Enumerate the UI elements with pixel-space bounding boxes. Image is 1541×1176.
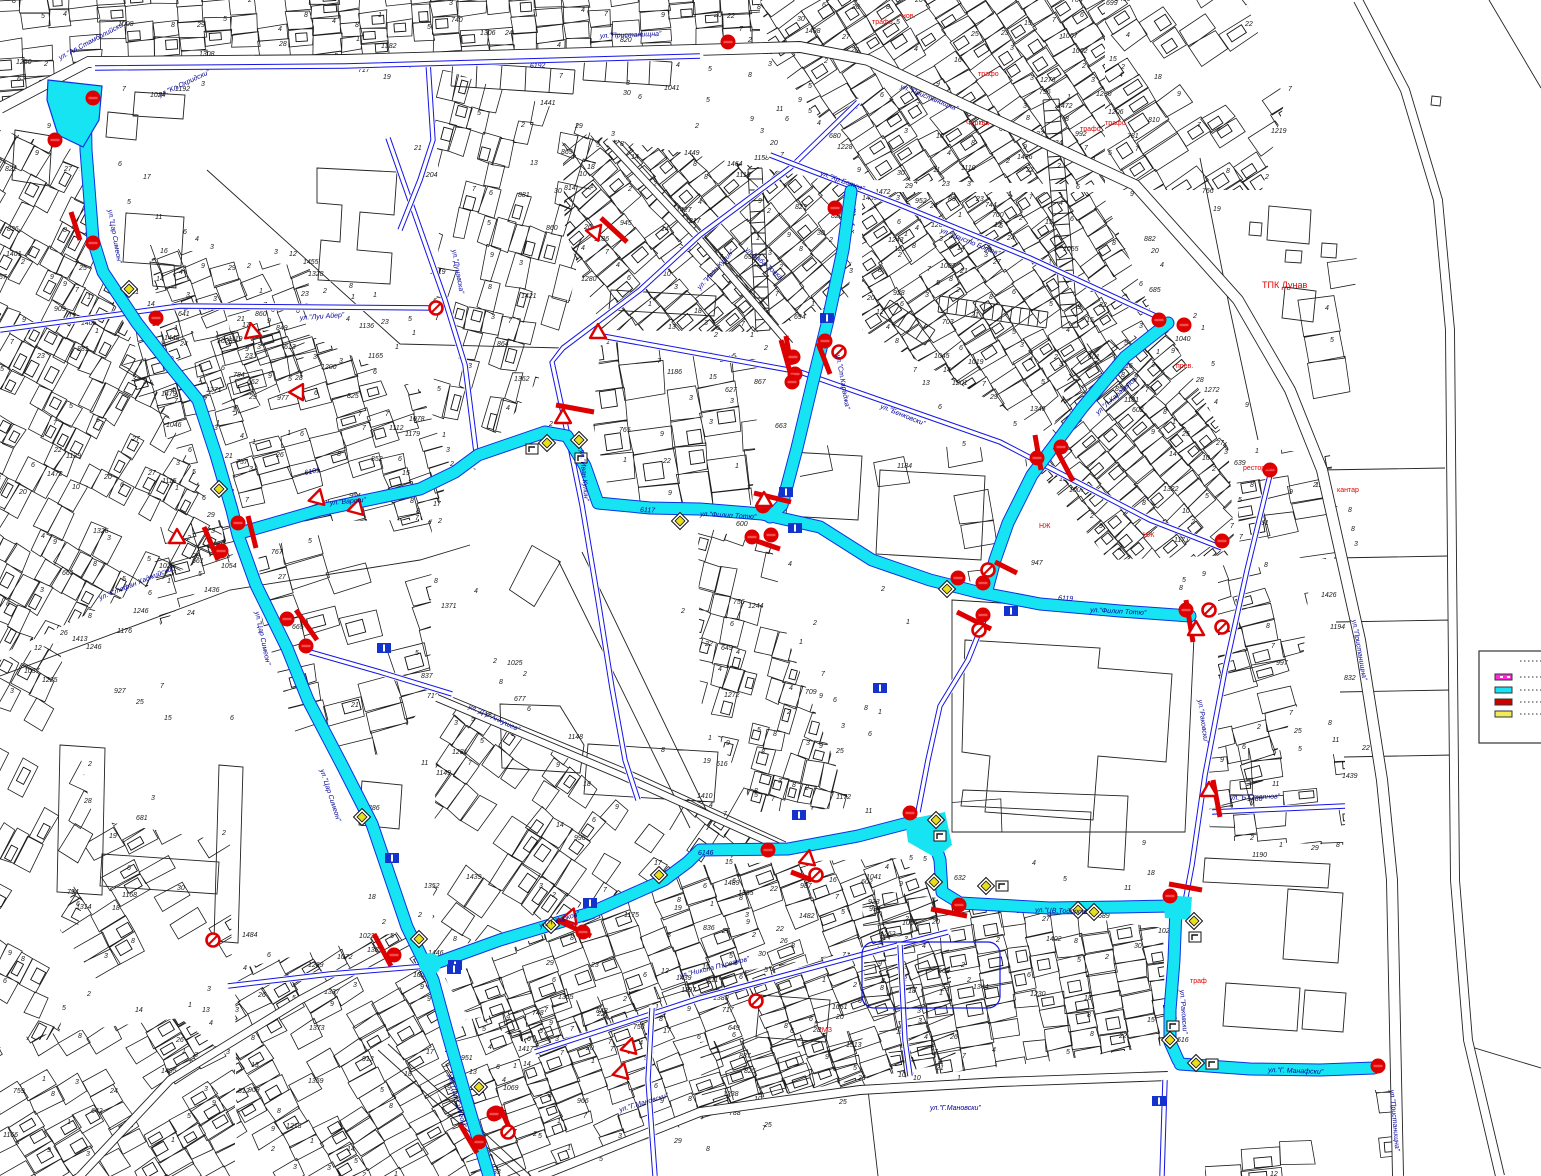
svg-text:5: 5 [1182,577,1186,584]
svg-text:нов.: нов. [902,13,915,20]
svg-text:30: 30 [554,188,562,195]
svg-text:19: 19 [703,758,711,765]
svg-text:602: 602 [1132,407,1144,414]
svg-text:5: 5 [62,1005,66,1012]
svg-text:9: 9 [212,1100,216,1107]
svg-text:2: 2 [1249,835,1254,842]
svg-text:1244: 1244 [748,603,764,610]
svg-text:5: 5 [122,576,126,583]
svg-text:11: 11 [776,106,783,113]
svg-text:8: 8 [1074,938,1078,945]
svg-text:1272: 1272 [1204,387,1220,394]
svg-text:661: 661 [62,570,74,577]
svg-text:852: 852 [371,456,383,463]
svg-text:1: 1 [906,619,910,626]
svg-text:18: 18 [1154,74,1162,81]
svg-text:20: 20 [1150,248,1159,255]
svg-text:3: 3 [339,358,343,365]
svg-text:8: 8 [1112,240,1116,247]
svg-text:3: 3 [849,268,853,275]
svg-text:1230: 1230 [1030,991,1046,998]
svg-text:951: 951 [461,1055,473,1062]
svg-text:12: 12 [289,251,297,258]
svg-text:4: 4 [914,46,918,53]
svg-text:3: 3 [939,236,943,243]
svg-text:8: 8 [453,936,457,943]
svg-text:704: 704 [1071,0,1083,4]
svg-text:1054: 1054 [221,563,237,570]
svg-text:9: 9 [35,150,39,157]
svg-text:23: 23 [380,319,389,326]
svg-text:11: 11 [1332,737,1339,744]
svg-text:16: 16 [160,248,168,255]
svg-text:9: 9 [47,1147,51,1154]
svg-text:663: 663 [775,423,787,430]
svg-text:8: 8 [1065,116,1069,123]
svg-text:2: 2 [804,785,809,792]
svg-text:1: 1 [373,292,377,299]
svg-text:4: 4 [817,120,821,127]
svg-text:1119: 1119 [228,336,243,343]
svg-text:1346: 1346 [1030,406,1046,413]
svg-text:2: 2 [995,937,1000,944]
svg-text:4: 4 [581,245,585,252]
svg-text:927: 927 [114,688,127,695]
svg-text:трафо: трафо [1080,126,1101,133]
svg-text:848: 848 [596,1008,608,1015]
svg-text:20: 20 [835,1014,844,1021]
svg-text:616: 616 [1177,1037,1189,1044]
svg-text:10: 10 [72,484,80,491]
svg-text:1: 1 [750,332,754,339]
svg-text:6: 6 [496,1064,500,1071]
svg-text:14: 14 [556,822,564,829]
svg-text:3: 3 [1091,77,1095,84]
svg-text:5: 5 [1211,361,1215,368]
svg-text:4: 4 [63,11,67,18]
svg-text:3: 3 [918,1018,922,1025]
svg-text:6: 6 [6,601,10,608]
svg-text:6: 6 [785,116,789,123]
svg-text:3: 3 [449,0,453,7]
svg-text:1306: 1306 [480,30,496,37]
svg-text:13: 13 [530,160,538,167]
svg-text:977: 977 [277,395,290,402]
svg-text:29: 29 [673,1138,682,1145]
svg-text:9: 9 [878,961,882,968]
svg-text:20: 20 [18,489,27,496]
svg-text:17: 17 [930,1049,939,1056]
svg-text:трафо: трафо [978,71,999,78]
svg-text:784: 784 [233,372,245,379]
svg-text:5: 5 [1108,150,1112,157]
svg-text:1439: 1439 [466,874,482,881]
svg-text:4: 4 [947,150,951,157]
svg-text:9: 9 [819,743,823,750]
svg-text:8: 8 [304,12,308,19]
svg-text:1: 1 [756,235,760,242]
svg-text:8: 8 [355,22,359,29]
svg-text:3: 3 [1010,45,1014,52]
svg-text:6: 6 [638,94,642,101]
svg-text:3: 3 [213,296,217,303]
svg-text:19: 19 [109,833,117,840]
svg-text:3: 3 [704,320,708,327]
svg-text:9: 9 [798,97,802,104]
svg-text:909: 909 [248,1087,260,1094]
svg-text:987: 987 [800,883,813,890]
svg-text:1046: 1046 [166,422,182,429]
svg-text:1359: 1359 [308,1078,324,1085]
svg-text:8: 8 [63,227,67,234]
svg-text:668: 668 [938,968,950,975]
svg-text:680: 680 [829,133,841,140]
svg-text:8: 8 [864,705,868,712]
svg-text:8: 8 [171,22,175,29]
svg-text:3: 3 [176,460,180,467]
svg-text:30: 30 [897,170,905,177]
svg-text:1184: 1184 [897,463,912,470]
svg-text:2: 2 [778,264,783,271]
svg-text:1228: 1228 [837,144,853,151]
svg-text:1: 1 [1172,419,1176,426]
svg-text:4: 4 [502,1077,506,1084]
svg-text:736: 736 [0,1047,1,1054]
svg-text:8: 8 [1328,720,1332,727]
svg-text:8: 8 [971,140,975,147]
svg-text:15: 15 [402,470,410,477]
svg-text:9: 9 [1289,489,1293,496]
svg-text:1472: 1472 [47,471,63,478]
svg-text:2: 2 [694,123,699,130]
svg-text:6: 6 [1012,289,1016,296]
svg-text:1441: 1441 [540,100,556,107]
svg-text:5: 5 [1077,957,1081,964]
svg-text:882: 882 [1144,236,1156,243]
svg-text:8: 8 [570,935,574,942]
svg-text:29: 29 [574,123,583,130]
svg-text:1: 1 [590,183,594,190]
svg-text:5: 5 [1238,497,1242,504]
svg-text:1172: 1172 [836,794,851,801]
svg-text:1449: 1449 [684,150,700,157]
svg-text:2: 2 [680,608,685,615]
svg-text:16: 16 [954,57,962,64]
svg-text:1: 1 [1059,34,1063,41]
svg-text:2: 2 [492,658,497,665]
svg-text:9: 9 [726,740,730,747]
svg-text:1: 1 [811,301,815,308]
svg-text:24: 24 [504,30,513,37]
svg-text:4: 4 [698,199,702,206]
svg-text:632: 632 [954,875,966,882]
svg-text:30: 30 [623,90,631,97]
svg-text:2: 2 [381,919,386,926]
svg-text:6: 6 [527,706,531,713]
svg-text:6: 6 [858,998,862,1005]
svg-text:6: 6 [398,456,402,463]
svg-text:5: 5 [706,97,710,104]
svg-text:3: 3 [1354,541,1358,548]
svg-text:5: 5 [192,469,196,476]
svg-text:649: 649 [721,645,733,652]
svg-text:2: 2 [966,977,971,984]
svg-text:1371: 1371 [441,603,457,610]
svg-text:5: 5 [962,441,966,448]
svg-text:4: 4 [789,685,793,692]
svg-text:22: 22 [1118,1033,1127,1040]
svg-text:6: 6 [654,1083,658,1090]
svg-text:4: 4 [240,433,244,440]
svg-text:6: 6 [96,417,100,424]
svg-text:1194: 1194 [1330,624,1345,631]
svg-text:913: 913 [362,1056,374,1063]
svg-text:10: 10 [1202,455,1210,462]
svg-text:4: 4 [616,262,620,269]
svg-text:3: 3 [274,249,278,256]
svg-text:29: 29 [248,394,257,401]
svg-text:26: 26 [175,1037,184,1044]
svg-text:10: 10 [936,133,944,140]
svg-text:1: 1 [735,463,739,470]
svg-text:8: 8 [1351,526,1355,533]
svg-text:3: 3 [186,292,190,299]
svg-text:23: 23 [975,196,984,203]
svg-text:2: 2 [221,830,226,837]
svg-text:685: 685 [1149,287,1161,294]
svg-text:3: 3 [75,1079,79,1086]
svg-text:5: 5 [480,738,484,745]
svg-text:5: 5 [482,1026,486,1033]
svg-text:траф: траф [1190,978,1207,985]
svg-text:3: 3 [1023,103,1027,110]
svg-text:1: 1 [232,407,236,414]
svg-text:22: 22 [662,458,671,465]
svg-text:3: 3 [257,344,261,351]
svg-text:1069: 1069 [503,1085,519,1092]
svg-text:6192: 6192 [530,62,546,70]
svg-text:2: 2 [960,962,965,969]
svg-text:8: 8 [792,782,796,789]
svg-text:765: 765 [619,427,631,434]
svg-text:6: 6 [1076,184,1080,191]
svg-text:8: 8 [1142,500,1146,507]
svg-text:740: 740 [451,17,463,24]
svg-text:5: 5 [1013,421,1017,428]
svg-text:1: 1 [1008,191,1012,198]
svg-text:26: 26 [857,1075,866,1082]
svg-text:757: 757 [236,459,249,466]
svg-text:1: 1 [799,639,803,646]
svg-text:8: 8 [251,1035,255,1042]
svg-text:3: 3 [40,587,44,594]
svg-text:2: 2 [852,982,857,989]
svg-text:3: 3 [1059,361,1063,368]
svg-text:4: 4 [332,18,336,25]
svg-text:1166: 1166 [3,1132,18,1139]
svg-text:8: 8 [349,283,353,290]
svg-text:2: 2 [417,912,422,919]
svg-text:9: 9 [1077,304,1081,311]
svg-text:22: 22 [704,641,713,648]
svg-text:8: 8 [389,1103,393,1110]
svg-text:5: 5 [1124,340,1128,347]
svg-text:15: 15 [164,715,172,722]
svg-text:4: 4 [243,965,247,972]
svg-text:1402: 1402 [1046,936,1062,943]
svg-text:4: 4 [41,533,45,540]
svg-text:3: 3 [806,740,810,747]
svg-text:1484: 1484 [242,932,258,939]
svg-text:1: 1 [412,330,416,337]
svg-text:30: 30 [797,16,805,23]
svg-text:6: 6 [938,404,942,411]
svg-text:1112: 1112 [389,425,404,432]
svg-text:1: 1 [904,231,908,238]
svg-text:1072: 1072 [337,954,353,961]
svg-text:11: 11 [421,760,428,767]
svg-text:5: 5 [538,1133,542,1140]
svg-text:22: 22 [1025,167,1034,174]
svg-text:27: 27 [992,259,1002,266]
svg-text:6: 6 [716,325,720,332]
svg-text:20: 20 [914,0,923,4]
svg-text:ТПК Дунав: ТПК Дунав [1262,280,1307,290]
svg-text:8: 8 [1179,585,1183,592]
svg-text:4: 4 [676,62,680,69]
svg-text:25: 25 [970,31,979,38]
svg-text:9: 9 [660,431,664,438]
svg-text:8: 8 [1090,1031,1094,1038]
svg-text:2: 2 [246,263,251,270]
svg-text:5: 5 [308,538,312,545]
svg-text:4: 4 [1214,399,1218,406]
svg-text:881: 881 [518,192,530,199]
svg-text:3: 3 [1139,323,1143,330]
svg-text:1436: 1436 [204,587,220,594]
svg-text:1421: 1421 [521,293,537,300]
svg-text:3: 3 [1030,75,1034,82]
svg-text:5: 5 [1063,876,1067,883]
svg-text:1272: 1272 [724,692,740,699]
svg-text:6: 6 [822,2,826,9]
svg-text:3: 3 [760,128,764,135]
svg-text:1179: 1179 [405,431,420,438]
svg-text:9: 9 [8,950,12,957]
svg-text:814: 814 [564,185,576,192]
svg-text:2: 2 [551,892,556,899]
svg-text:1: 1 [67,1119,71,1126]
svg-text:3: 3 [210,244,214,251]
svg-text:1269: 1269 [308,962,324,969]
svg-text:3: 3 [107,535,111,542]
svg-text:14: 14 [156,276,164,283]
svg-text:8: 8 [12,0,16,5]
svg-text:1022: 1022 [359,933,375,940]
svg-text:3: 3 [86,1151,90,1158]
svg-text:24: 24 [929,203,938,210]
svg-text:6: 6 [230,715,234,722]
svg-text:9: 9 [1177,91,1181,98]
svg-text:9: 9 [1245,402,1249,409]
svg-text:5: 5 [1298,746,1302,753]
svg-text:9: 9 [758,198,762,205]
svg-text:1: 1 [708,735,712,742]
svg-text:6: 6 [643,972,647,979]
svg-text:27: 27 [277,574,287,581]
svg-text:837: 837 [421,673,434,680]
svg-text:4: 4 [548,1093,552,1100]
svg-text:5: 5 [288,376,292,383]
svg-text:1382: 1382 [381,43,397,50]
svg-text:4: 4 [346,316,350,323]
svg-text:3: 3 [917,1008,921,1015]
svg-text:600: 600 [736,521,748,528]
svg-text:25: 25 [1293,728,1302,735]
svg-text:1007: 1007 [1062,33,1079,40]
svg-text:5: 5 [477,110,481,117]
svg-text:9: 9 [819,693,823,700]
svg-text:4: 4 [1119,72,1123,79]
svg-text:5: 5 [390,933,394,940]
svg-text:5: 5 [198,571,202,578]
svg-text:748: 748 [532,1010,544,1017]
svg-text:1464: 1464 [727,161,743,168]
svg-text:16: 16 [829,877,837,884]
svg-text:5: 5 [764,967,768,974]
svg-text:3: 3 [454,720,458,727]
svg-text:3: 3 [611,131,615,138]
svg-text:1: 1 [167,578,171,585]
svg-text:27: 27 [841,34,851,41]
svg-text:5: 5 [923,856,927,863]
svg-text:18: 18 [112,905,120,912]
svg-text:6: 6 [221,365,225,372]
svg-text:1: 1 [442,432,446,439]
svg-text:2: 2 [1190,519,1195,526]
svg-text:8: 8 [410,498,414,505]
svg-text:8: 8 [748,72,752,79]
svg-text:6: 6 [1242,744,1246,751]
svg-text:2: 2 [622,996,627,1003]
svg-text:5: 5 [1205,493,1209,500]
svg-text:9: 9 [47,123,51,130]
svg-text:9: 9 [267,318,271,325]
svg-text:2: 2 [1192,313,1197,320]
svg-text:13: 13 [668,324,676,331]
svg-text:23: 23 [244,353,253,360]
svg-text:5: 5 [808,108,812,115]
svg-text:15: 15 [709,374,717,381]
svg-text:27: 27 [63,166,73,173]
svg-text:6: 6 [703,883,707,890]
svg-text:9: 9 [661,12,665,19]
svg-text:6: 6 [31,462,35,469]
svg-text:5: 5 [1066,1049,1070,1056]
svg-text:29: 29 [227,265,236,272]
svg-text:2: 2 [763,345,768,352]
svg-text:10: 10 [579,171,587,178]
svg-text:2: 2 [43,61,48,68]
svg-text:15: 15 [725,859,733,866]
svg-text:1: 1 [175,485,179,492]
svg-text:9: 9 [668,490,672,497]
svg-text:5: 5 [841,909,845,916]
svg-text:649: 649 [728,1025,740,1032]
svg-text:1262: 1262 [880,931,896,938]
svg-text:29: 29 [206,512,215,519]
svg-text:1: 1 [567,1145,571,1152]
